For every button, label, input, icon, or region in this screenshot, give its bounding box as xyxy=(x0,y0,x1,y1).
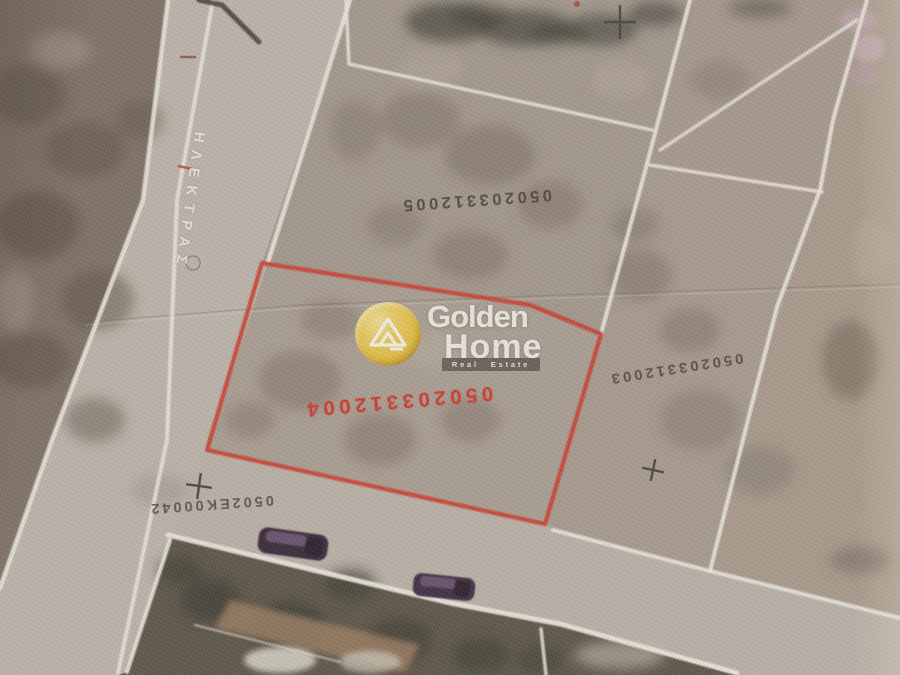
golden-home-logo-icon xyxy=(355,302,421,366)
house-pyramid-icon xyxy=(366,314,410,356)
cadastral-map-photo: ΗΛΕΚΤΡΑΣ 050203312005 050203312004 05020… xyxy=(0,0,900,675)
watermark-logo: Golden Home Real Estate xyxy=(355,298,590,376)
watermark-tagline: Real Estate xyxy=(442,358,540,371)
